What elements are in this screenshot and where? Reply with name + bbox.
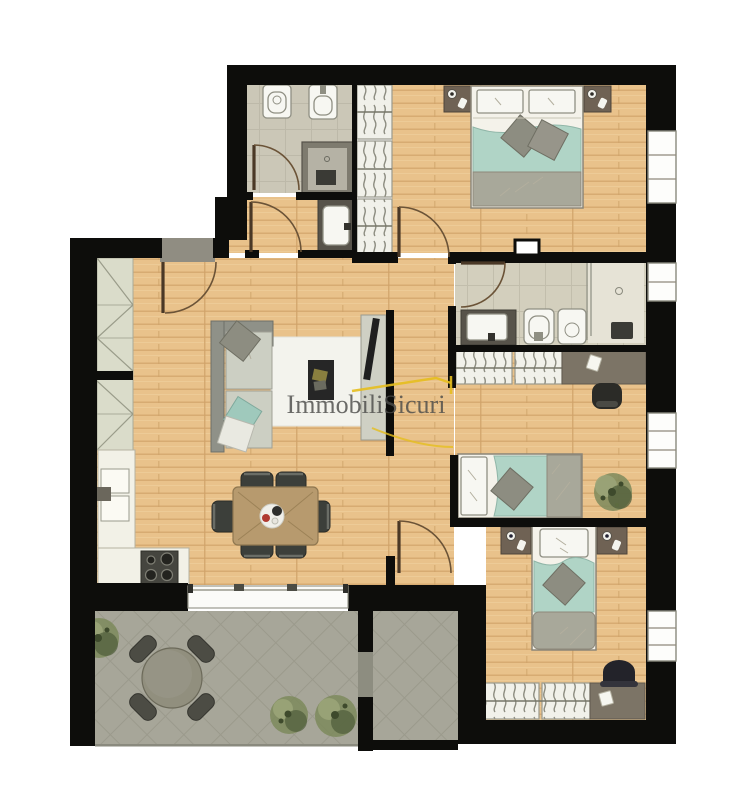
plant bbox=[270, 696, 308, 734]
desk-chair bbox=[592, 383, 622, 409]
terrace-patch-floor bbox=[373, 610, 458, 741]
kitchen-handle bbox=[97, 487, 111, 501]
vanity bbox=[461, 310, 516, 345]
vanity-sink bbox=[467, 314, 507, 340]
toilet2 bbox=[524, 309, 554, 344]
nightstand-right bbox=[597, 527, 627, 554]
floor-plan-canvas: ImmobiliSicuri bbox=[0, 0, 746, 797]
stove bbox=[141, 551, 178, 584]
double-bed bbox=[471, 86, 583, 208]
paper bbox=[599, 691, 614, 707]
wall-duct bbox=[515, 240, 539, 255]
terrace-gate bbox=[358, 652, 373, 697]
nightstand-right bbox=[584, 86, 611, 112]
toilet bbox=[263, 85, 291, 118]
pillow bbox=[529, 90, 575, 113]
shower2-head bbox=[611, 322, 633, 339]
plant bbox=[594, 473, 632, 511]
bed-blanket-gray bbox=[547, 455, 581, 517]
shower bbox=[302, 142, 353, 196]
pillow bbox=[477, 90, 523, 113]
sofa bbox=[211, 321, 273, 452]
terrace-table bbox=[142, 648, 202, 708]
terrace-glass-door bbox=[188, 584, 348, 608]
window-bedroom1 bbox=[648, 131, 676, 203]
watermark-text: ImmobiliSicuri bbox=[272, 390, 460, 420]
window-bedroom2 bbox=[648, 413, 676, 468]
bidet bbox=[309, 85, 337, 119]
nightstand-left bbox=[501, 527, 531, 554]
desk3 bbox=[590, 683, 645, 719]
corridor-wardrobe bbox=[357, 85, 392, 253]
laundry-nook bbox=[318, 197, 354, 251]
single-bed bbox=[458, 454, 582, 518]
pillow bbox=[461, 457, 487, 515]
faucet bbox=[344, 223, 351, 230]
storage-cabinet bbox=[97, 258, 133, 450]
terrace-edge bbox=[95, 744, 358, 747]
shower-head bbox=[316, 170, 336, 185]
entry-landing bbox=[160, 238, 215, 262]
tv-unit bbox=[361, 315, 386, 440]
nightstand-left bbox=[444, 86, 471, 112]
bed-blanket-gray bbox=[473, 172, 581, 206]
bed3 bbox=[532, 524, 596, 650]
desk bbox=[562, 348, 646, 384]
window-bedroom3 bbox=[648, 611, 676, 661]
bidet2 bbox=[558, 309, 586, 344]
plant bbox=[315, 695, 357, 737]
